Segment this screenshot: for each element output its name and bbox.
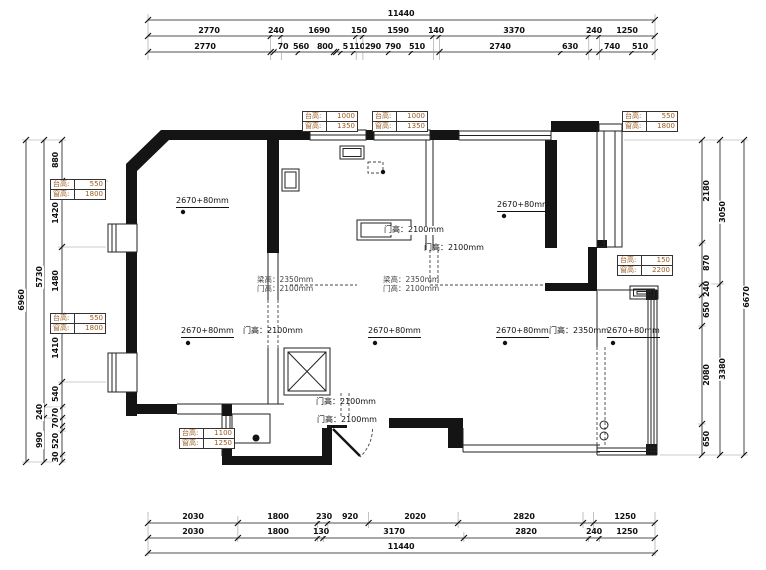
ceiling-height-label: 2670+80mm <box>176 197 229 208</box>
ceiling-height-label: 2670+80mm <box>607 327 660 338</box>
dim-left-inner-6: 70 <box>52 417 60 430</box>
spec-value: 550 <box>75 314 105 324</box>
ceiling-height-label: 2670+80mm <box>181 327 234 338</box>
ceiling-height-label: 2670+80mm <box>497 201 550 212</box>
beam-height-label: 梁高：2350mm <box>257 276 313 284</box>
door-height-label: 门高：2100mm <box>243 327 303 336</box>
spec-label: 窗高: <box>51 324 75 333</box>
spec-value: 2200 <box>642 266 672 275</box>
dim-right-outer: 6670 <box>743 285 751 308</box>
dim-right-inner-3: 650 <box>703 301 711 319</box>
floor-drain-icon <box>600 432 608 440</box>
floorplan-page: 11440 2770 240 1690 150 1590 140 3370 24… <box>0 0 766 570</box>
spec-label: 台高: <box>303 112 327 122</box>
dim-bottom-row1-2: 230 <box>315 513 333 521</box>
dim-bottom-row1-1: 1800 <box>266 513 289 521</box>
dim-bottom-row1-4: 2020 <box>403 513 426 521</box>
dim-top-row1-4: 1590 <box>386 27 409 35</box>
dim-right-inner-5: 650 <box>703 430 711 448</box>
dim-right-mid-1: 3380 <box>719 357 727 380</box>
spec-label: 窗高: <box>303 122 327 131</box>
window-spec-box: 台高:550 窗高:1800 <box>50 179 106 200</box>
spec-value: 550 <box>75 180 105 190</box>
dim-left-inner-1: 1420 <box>52 201 60 224</box>
spec-value: 150 <box>642 256 672 266</box>
dim-right-inner-1: 870 <box>703 254 711 272</box>
fixtures <box>232 146 658 443</box>
spec-value: 1100 <box>204 429 234 439</box>
dim-bottom-row1-6: 1250 <box>613 513 636 521</box>
entrance-door-arc <box>360 429 373 457</box>
dim-top-row1-3: 150 <box>350 27 368 35</box>
spec-value: 1350 <box>397 122 427 131</box>
dim-left-mid-0: 5730 <box>36 265 44 288</box>
dim-top-row1-5: 140 <box>427 27 445 35</box>
dim-top-row1-1: 240 <box>267 27 285 35</box>
spec-value: 1000 <box>397 112 427 122</box>
spec-label: 窗高: <box>51 190 75 199</box>
dim-left-mid-1: 240 <box>36 403 44 421</box>
beam-height-label: 梁高：2350mm <box>383 276 439 284</box>
dim-left-inner-4: 540 <box>52 385 60 403</box>
stove-burner-icon <box>253 435 260 442</box>
spec-label: 台高: <box>373 112 397 122</box>
spec-label: 台高: <box>618 256 642 266</box>
dim-top-row2-3: 800 <box>316 43 334 51</box>
dim-top-total: 11440 <box>387 10 416 18</box>
spec-value: 1000 <box>327 112 357 122</box>
window-spec-box: 台高:1100 窗高:1250 <box>179 428 235 449</box>
dim-bottom-row2-3: 3170 <box>382 528 405 536</box>
dim-top-row2-9: 2740 <box>488 43 511 51</box>
spec-value: 550 <box>647 112 677 122</box>
dim-bottom-row2-4: 2820 <box>514 528 537 536</box>
door-height-label: 门高：2100mm <box>383 285 439 293</box>
door-height-label: 门高：2100mm <box>316 416 378 425</box>
door-height-label: 门高：2100mm <box>257 285 313 293</box>
door-height-label: 门高：2100mm <box>424 244 484 253</box>
dim-right-inner-4: 2080 <box>703 363 711 386</box>
spec-value: 1800 <box>75 190 105 199</box>
ceiling-height-label: 2670+80mm <box>496 327 549 338</box>
spec-label: 窗高: <box>373 122 397 131</box>
door-height-label: 门高：2100mm <box>383 226 445 235</box>
dim-bottom-row1-0: 2030 <box>181 513 204 521</box>
dim-bottom-row2-2: 130 <box>312 528 330 536</box>
door-height-label: 门高：2100mm <box>316 398 376 407</box>
dim-bottom-total: 11440 <box>387 543 416 551</box>
ceiling-height-label: 2670+80mm <box>368 327 421 338</box>
spec-value: 1350 <box>327 122 357 131</box>
spec-label: 窗高: <box>618 266 642 275</box>
window-spec-box: 台高:1000 窗高:1350 <box>302 111 358 132</box>
dim-top-row2-0: 2770 <box>193 43 216 51</box>
dim-bottom-row1-3: 920 <box>341 513 359 521</box>
dim-top-row2-10: 630 <box>561 43 579 51</box>
dim-top-row1-0: 2770 <box>197 27 220 35</box>
dim-bottom-row2-6: 1250 <box>615 528 638 536</box>
dim-left-inner-3: 1410 <box>52 336 60 359</box>
dim-top-row2-6: 290 <box>364 43 382 51</box>
dim-right-inner-2: 240 <box>703 280 711 298</box>
spec-value: 1250 <box>204 439 234 448</box>
dim-top-row2-7: 790 <box>384 43 402 51</box>
dim-top-row2-8: 510 <box>408 43 426 51</box>
window-spec-box: 台高:150 窗高:2200 <box>617 255 673 276</box>
window-spec-box: 台高:550 窗高:1800 <box>622 111 678 132</box>
dim-bottom-row2-0: 2030 <box>181 528 204 536</box>
dim-bottom-row2-5: 240 <box>585 528 603 536</box>
dim-bottom-row2-1: 1800 <box>266 528 289 536</box>
spec-label: 台高: <box>51 180 75 190</box>
dim-left-inner-7: 520 <box>52 432 60 450</box>
spec-label: 台高: <box>623 112 647 122</box>
dim-right-inner-0: 2180 <box>703 179 711 202</box>
dim-top-row2-12: 510 <box>631 43 649 51</box>
dim-bottom-row1-5: 2820 <box>512 513 535 521</box>
window-spec-box: 台高:550 窗高:1800 <box>50 313 106 334</box>
door-height-label: 门高：2350mm <box>549 327 609 336</box>
spec-label: 窗高: <box>180 439 204 448</box>
entrance-door-leaf <box>333 429 360 456</box>
dim-top-row1-6: 3370 <box>502 27 525 35</box>
dim-right-mid-0: 3050 <box>719 200 727 223</box>
spec-label: 台高: <box>51 314 75 324</box>
dim-top-row1-2: 1690 <box>307 27 330 35</box>
dim-left-outer: 6960 <box>18 288 26 311</box>
dim-left-inner-8: 30 <box>52 451 60 464</box>
dim-top-row2-1: 70 <box>277 43 290 51</box>
dim-left-mid-2: 990 <box>36 431 44 449</box>
window-spec-box: 台高:1000 窗高:1350 <box>372 111 428 132</box>
floor-drain-icon <box>600 421 608 429</box>
dim-top-row2-11: 740 <box>603 43 621 51</box>
spec-label: 台高: <box>180 429 204 439</box>
dim-top-row1-7: 240 <box>585 27 603 35</box>
spec-value: 1800 <box>75 324 105 333</box>
dim-left-inner-2: 1480 <box>52 269 60 292</box>
dim-top-row2-2: 560 <box>292 43 310 51</box>
spec-label: 窗高: <box>623 122 647 131</box>
dim-top-row1-8: 1250 <box>615 27 638 35</box>
spec-value: 1800 <box>647 122 677 131</box>
dim-left-inner-0: 880 <box>52 151 60 169</box>
